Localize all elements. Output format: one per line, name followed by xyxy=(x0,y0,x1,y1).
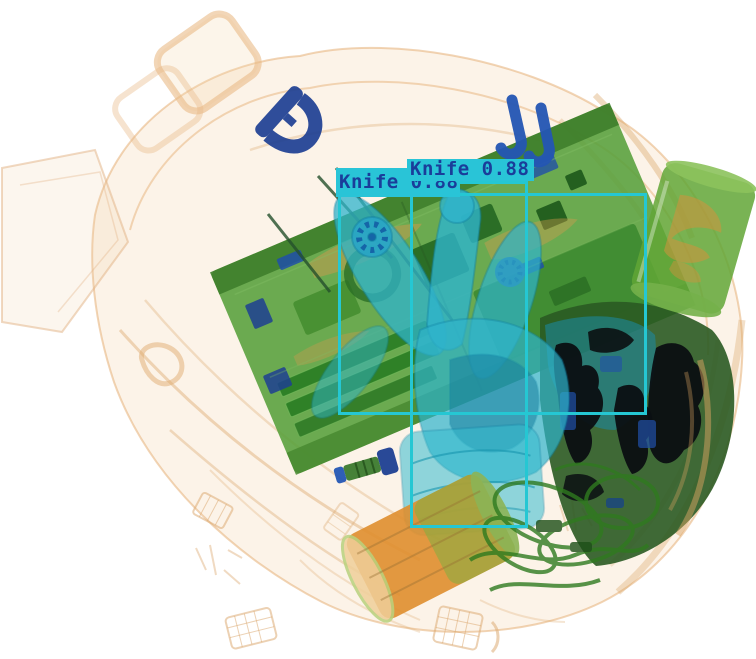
detection-bounding-box xyxy=(410,181,528,528)
detection-label: Knife 0.88 xyxy=(407,159,534,181)
xray-scan-image: Knife 0.88 Knife 0.88 xyxy=(0,0,756,659)
